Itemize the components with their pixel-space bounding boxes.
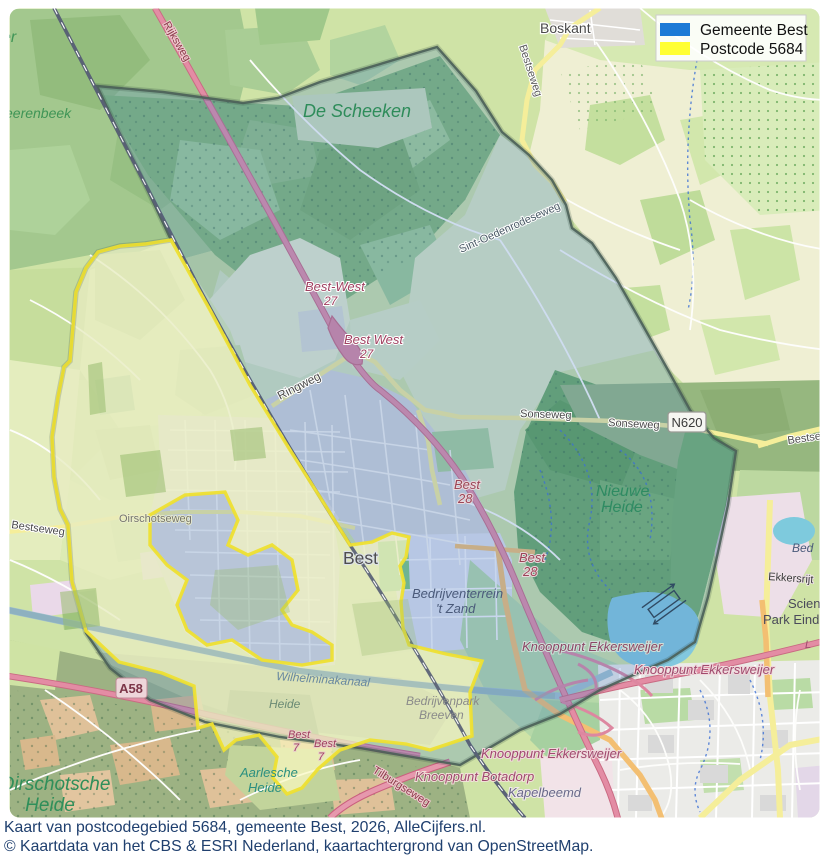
svg-text:Best: Best	[343, 548, 378, 568]
svg-text:Knooppunt Ekkersweijer: Knooppunt Ekkersweijer	[481, 746, 622, 761]
svg-text:Bed: Bed	[792, 541, 814, 555]
svg-text:Best: Best	[519, 550, 546, 565]
svg-text:Park Eind: Park Eind	[763, 612, 819, 627]
svg-text:7: 7	[318, 751, 325, 763]
svg-text:De Scheeken: De Scheeken	[303, 101, 411, 121]
svg-text:Nieuwe: Nieuwe	[596, 483, 649, 500]
svg-text:Boskant: Boskant	[540, 20, 591, 36]
svg-text:Bedrijventerrein: Bedrijventerrein	[412, 586, 503, 601]
svg-text:Best: Best	[314, 738, 337, 750]
svg-text:Knooppunt Botadorp: Knooppunt Botadorp	[415, 769, 534, 784]
svg-text:'t Zand: 't Zand	[436, 601, 476, 616]
svg-text:Oirschotsche: Oirschotsche	[0, 774, 110, 795]
svg-text:L: L	[805, 639, 811, 651]
svg-text:Breeven: Breeven	[419, 708, 464, 722]
svg-text:Scien: Scien	[788, 596, 821, 611]
svg-text:Kapelbeemd: Kapelbeemd	[508, 785, 582, 800]
svg-text:27: 27	[359, 347, 375, 361]
svg-text:Gemeente Best: Gemeente Best	[700, 22, 808, 39]
svg-text:Best: Best	[454, 477, 481, 492]
svg-text:Postcode 5684: Postcode 5684	[700, 41, 804, 58]
svg-text:er: er	[2, 29, 17, 46]
svg-text:Aarlesche: Aarlesche	[239, 765, 298, 780]
svg-text:Best West: Best West	[344, 332, 404, 347]
svg-text:Sonseweg: Sonseweg	[520, 408, 572, 422]
svg-text:Knooppunt Ekkersweijer: Knooppunt Ekkersweijer	[634, 662, 775, 677]
svg-text:27: 27	[323, 294, 339, 308]
svg-text:Heide: Heide	[25, 795, 75, 816]
svg-text:Heide: Heide	[269, 697, 301, 711]
svg-text:Bedrijvenpark: Bedrijvenpark	[406, 694, 480, 708]
svg-text:A58: A58	[119, 681, 143, 696]
svg-text:N620: N620	[671, 415, 702, 430]
svg-text:Heide: Heide	[248, 780, 282, 795]
svg-text:eerenbeek: eerenbeek	[5, 105, 72, 121]
svg-text:Best-West: Best-West	[305, 279, 366, 294]
svg-text:Best: Best	[288, 729, 311, 741]
svg-text:Knooppunt Ekkersweijer: Knooppunt Ekkersweijer	[522, 639, 663, 654]
svg-text:7: 7	[293, 742, 300, 754]
svg-text:28: 28	[522, 564, 538, 579]
svg-text:28: 28	[457, 491, 473, 506]
svg-text:Heide: Heide	[601, 499, 643, 516]
svg-text:Oirschotseweg: Oirschotseweg	[119, 513, 192, 525]
